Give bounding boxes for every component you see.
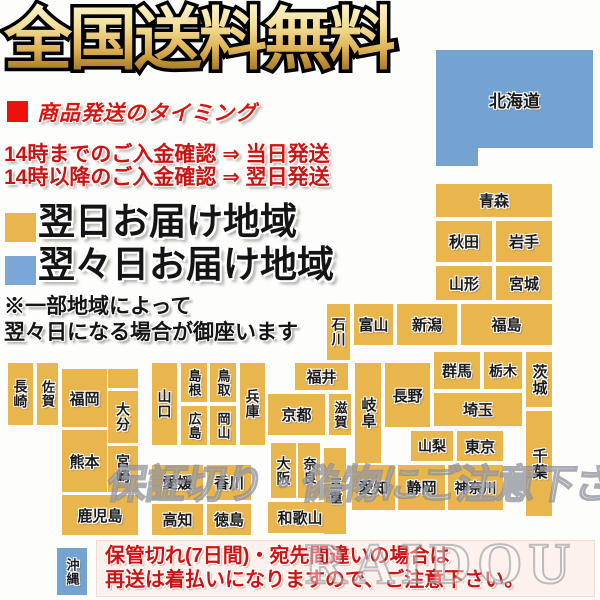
prefecture-oita: 大分 (108, 391, 138, 443)
prefecture-kagawa: 香川 (207, 465, 251, 500)
prefecture-fukuoka: 福岡 (62, 369, 107, 427)
prefecture-kanagawa: 神奈川 (448, 465, 503, 510)
prefecture-hyogo: 兵庫 (240, 363, 265, 445)
prefecture-gunma: 群馬 (434, 352, 480, 389)
prefecture-kagoshima: 鹿児島 (62, 495, 138, 535)
prefecture-hokkaido: 北海道 (436, 50, 593, 148)
prefecture-yamagata: 山形 (436, 266, 492, 300)
japan-map: 北海道青森秋田岩手山形宮城新潟福島富山石川福井群馬栃木茨城長野岐阜埼玉山梨東京千… (0, 0, 600, 600)
prefecture-chiba: 千葉 (526, 411, 552, 516)
prefecture-tokyo: 東京 (457, 431, 503, 461)
prefecture-wakayama: 和歌山 (268, 502, 332, 533)
prefecture-nagasaki: 長崎 (8, 363, 33, 425)
prefecture-fukushima: 福島 (461, 304, 552, 345)
prefecture-fukui: 福井 (295, 363, 348, 390)
prefecture-yamaguchi: 山口 (152, 363, 177, 445)
prefecture-saga: 佐賀 (37, 363, 58, 425)
prefecture-aomori: 青森 (436, 184, 552, 217)
prefecture-hiroshima: 広島 (181, 406, 207, 445)
prefecture-iwate: 岩手 (496, 221, 552, 262)
shipping-banner: 北海道青森秋田岩手山形宮城新潟福島富山石川福井群馬栃木茨城長野岐阜埼玉山梨東京千… (0, 0, 600, 600)
prefecture-tochigi: 栃木 (484, 352, 522, 389)
prefecture-kyoto: 京都 (268, 394, 325, 435)
prefecture-fukuoka-ext (108, 369, 138, 388)
prefecture-ishikawa: 石川 (327, 304, 350, 360)
prefecture-niigata: 新潟 (397, 304, 457, 345)
prefecture-okinawa: 沖縄 (57, 548, 87, 595)
prefecture-okayama: 岡山 (210, 406, 236, 445)
prefecture-nara: 奈良 (298, 443, 320, 498)
prefecture-miyagi: 宮城 (496, 266, 552, 300)
prefecture-tottori: 鳥取 (210, 363, 236, 402)
prefecture-osaka: 大阪 (271, 443, 296, 498)
prefecture-shimane: 島根 (181, 363, 207, 402)
prefecture-tokushima: 徳島 (207, 504, 251, 535)
prefecture-aichi: 愛知 (352, 465, 395, 510)
prefecture-kochi: 高知 (152, 504, 203, 535)
prefecture-kumamoto: 熊本 (62, 430, 107, 492)
prefecture-shiga: 滋賀 (329, 394, 351, 435)
prefecture-ibaraki: 茨城 (526, 352, 552, 407)
prefecture-akita: 秋田 (436, 221, 492, 262)
prefecture-gifu: 岐阜 (355, 363, 381, 463)
storage-notice-line-1: 保管切れ(7日間)・宛先間違いの場合は (105, 544, 524, 568)
prefecture-saitama: 埼玉 (434, 393, 522, 426)
storage-notice-text: 保管切れ(7日間)・宛先間違いの場合は 再送は着払いになりますので、ご注意下さい… (105, 544, 524, 592)
prefecture-ehime: 愛媛 (152, 465, 203, 500)
prefecture-yamanashi: 山梨 (411, 431, 453, 461)
storage-notice-line-2: 再送は着払いになりますので、ご注意下さい。 (105, 568, 524, 592)
prefecture-shizuoka: 静岡 (398, 465, 445, 510)
prefecture-nagano: 長野 (385, 363, 430, 427)
prefecture-toyama: 富山 (354, 304, 393, 345)
prefecture-miyazaki: 宮崎 (108, 446, 138, 492)
prefecture-hokkaido-tab (436, 148, 478, 166)
